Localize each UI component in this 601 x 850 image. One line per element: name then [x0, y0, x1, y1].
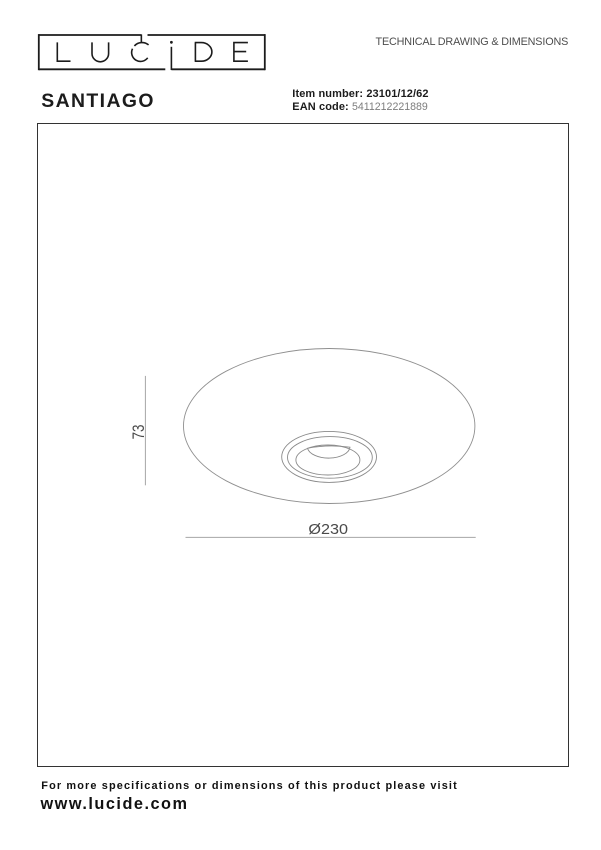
svg-text:Ø230: Ø230 — [308, 522, 348, 538]
svg-text:73: 73 — [130, 425, 148, 440]
